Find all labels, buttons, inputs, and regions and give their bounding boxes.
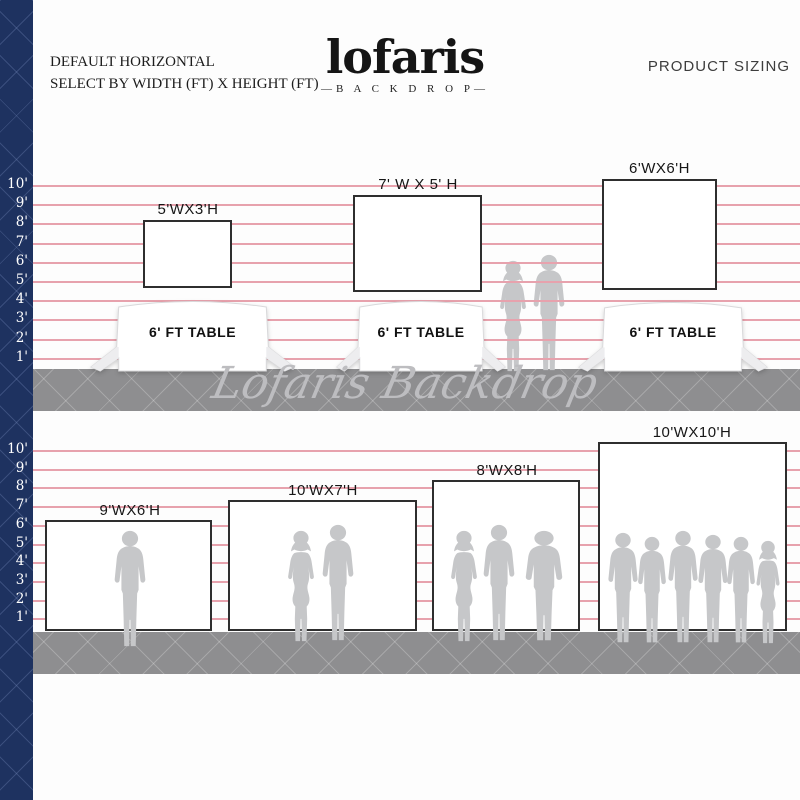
man-silhouette [727,537,755,643]
ruler-number-row1: 1' [0,349,28,365]
lofaris-logo: lofaris —B A C K D R O P— [300,34,510,95]
product-sizing-infographic: DEFAULT HORIZONTAL SELECT BY WIDTH (FT) … [0,0,800,800]
man-silhouette [526,531,562,640]
ruler-number-row2: 2' [0,591,28,607]
woman-silhouette [288,531,314,641]
size-label-10x7: 10'WX7'H [248,482,398,499]
man-silhouette [698,535,727,642]
backdrop-6x6 [602,179,717,290]
ruler-number-row1: 6' [0,253,28,269]
people-group-1 [103,527,155,648]
ruler-number-row1: 7' [0,234,28,250]
table-3-label: 6' FT TABLE [578,324,768,340]
woman-silhouette [451,531,477,641]
table-3: 6' FT TABLE [578,300,768,372]
ruler-number-row1: 9' [0,195,28,211]
man-silhouette [534,255,565,370]
backdrop-7x5 [353,195,482,292]
size-label-10x10: 10'WX10'H [617,424,767,441]
size-label-5x3: 5'WX3'H [123,201,253,218]
logo-wordmark: lofaris [300,34,510,80]
ruler-number-row1: 4' [0,291,28,307]
man-silhouette [638,537,666,643]
ruler-number-row2: 6' [0,516,28,532]
table-1: 6' FT TABLE [90,299,295,372]
man-silhouette [323,525,354,640]
ruler-number-row2: 4' [0,553,28,569]
size-label-9x6: 9'WX6'H [55,502,205,519]
size-label-6x6: 6'WX6'H [592,160,727,177]
man-silhouette [608,533,637,642]
size-label-7x5: 7' W X 5' H [343,176,493,193]
ruler-number-row1: 3' [0,310,28,326]
table-2-label: 6' FT TABLE [336,324,506,340]
man-silhouette [668,531,697,642]
page-subtitle: DEFAULT HORIZONTAL SELECT BY WIDTH (FT) … [50,52,320,96]
size-label-8x8: 8'WX8'H [432,462,582,479]
ruler-number-row2: 3' [0,572,28,588]
ruler-number-row2: 9' [0,460,28,476]
ruler-number-row2: 1' [0,609,28,625]
backdrop-5x3 [143,220,232,288]
ruler-strip [0,0,33,800]
ruler-number-row1: 2' [0,330,28,346]
table-2: 6' FT TABLE [336,299,506,372]
table-1-label: 6' FT TABLE [90,324,295,340]
people-group-2 [280,520,360,642]
ruler-number-row2: 10' [0,441,28,457]
subtitle-line-2: SELECT BY WIDTH (FT) X HEIGHT (FT) [50,74,320,96]
ruler-number-row1: 8' [0,214,28,230]
floor-band-row1 [33,369,800,411]
ruler-number-row2: 8' [0,478,28,494]
people-group-6 [603,528,785,644]
man-silhouette [115,531,146,646]
ruler-number-row2: 5' [0,535,28,551]
woman-silhouette [756,541,779,643]
ruler-number-row1: 5' [0,272,28,288]
man-silhouette [484,525,515,640]
ruler-number-row1: 10' [0,176,28,192]
people-group-3 [445,518,570,642]
ruler-number-row2: 7' [0,497,28,513]
subtitle-line-1: DEFAULT HORIZONTAL [50,52,320,74]
logo-tagline: —B A C K D R O P— [300,83,510,95]
page-title: PRODUCT SIZING [640,58,790,75]
